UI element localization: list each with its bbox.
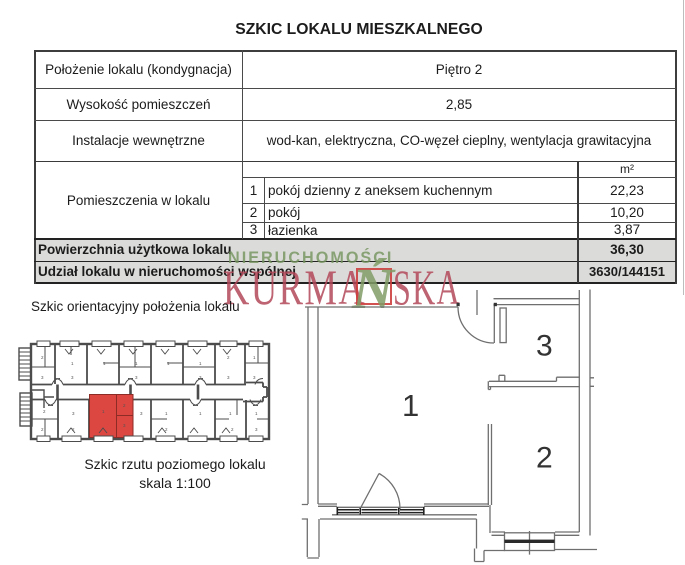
svg-text:1: 1 xyxy=(135,361,138,366)
svg-text:1: 1 xyxy=(253,355,256,360)
svg-text:2: 2 xyxy=(536,442,553,475)
svg-text:2: 2 xyxy=(72,427,75,432)
svg-text:3: 3 xyxy=(536,330,553,363)
svg-text:2: 2 xyxy=(41,355,44,360)
svg-text:2: 2 xyxy=(43,409,46,414)
svg-text:3: 3 xyxy=(72,411,75,416)
svg-text:2: 2 xyxy=(227,355,230,360)
svg-text:1: 1 xyxy=(199,361,202,366)
svg-text:3: 3 xyxy=(135,375,138,380)
svg-text:1: 1 xyxy=(229,411,232,416)
svg-text:3: 3 xyxy=(140,411,143,416)
svg-text:1: 1 xyxy=(255,411,258,416)
svg-text:1: 1 xyxy=(199,411,202,416)
svg-text:3: 3 xyxy=(227,375,230,380)
svg-text:2: 2 xyxy=(165,427,168,432)
svg-text:3: 3 xyxy=(41,375,44,380)
svg-text:1: 1 xyxy=(71,361,74,366)
svg-text:3: 3 xyxy=(253,375,256,380)
svg-text:1: 1 xyxy=(402,388,419,423)
svg-text:2: 2 xyxy=(231,427,234,432)
svg-text:3: 3 xyxy=(255,427,258,432)
svg-text:3: 3 xyxy=(71,375,74,380)
svg-text:1: 1 xyxy=(165,411,168,416)
svg-text:2: 2 xyxy=(41,427,44,432)
